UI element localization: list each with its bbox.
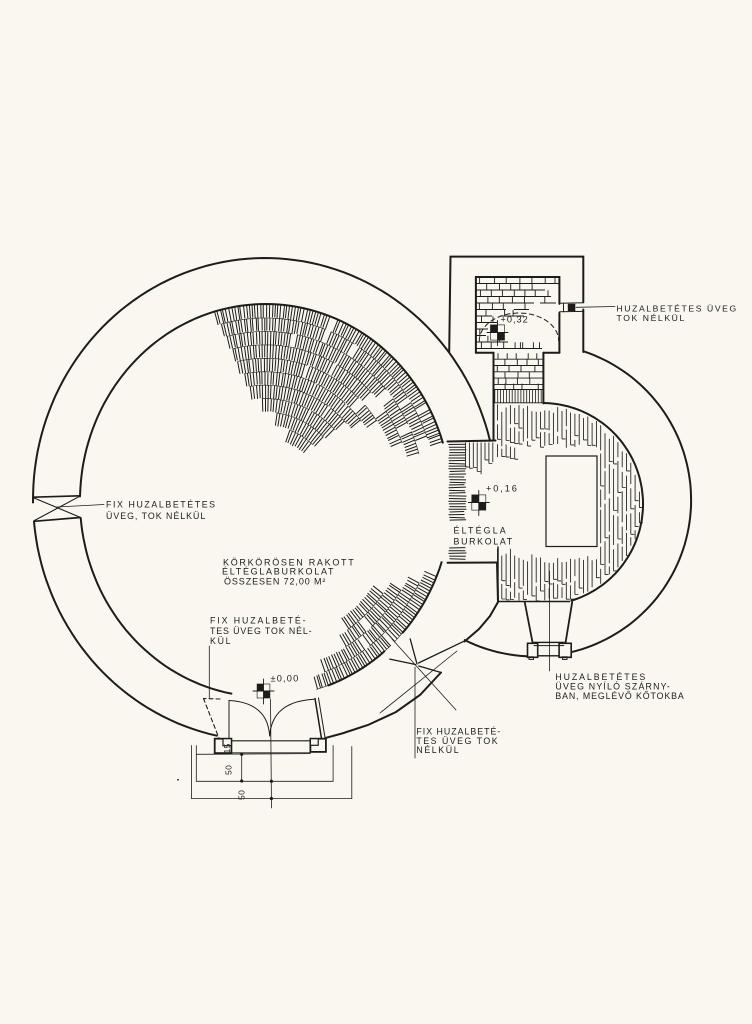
svg-text:15: 15 [222,743,232,753]
svg-text:FIX HUZALBETÉTES: FIX HUZALBETÉTES [106,500,217,510]
svg-text:+0,32: +0,32 [501,315,529,325]
svg-text:BAN, MEGLÉVŐ KŐTOKBA: BAN, MEGLÉVŐ KŐTOKBA [555,691,684,701]
svg-text:HUZALBETÉTES: HUZALBETÉTES [555,672,647,682]
svg-text:50: 50 [224,765,234,775]
svg-text:TES ÜVEG TOK NÉL-: TES ÜVEG TOK NÉL- [210,626,312,636]
svg-text:FIX HUZALBETÉ-: FIX HUZALBETÉ- [210,615,307,625]
svg-text:KÜL: KÜL [210,636,232,646]
svg-text:+0,16: +0,16 [486,484,519,494]
svg-text:ÜVEG, TOK NÉLKÜL: ÜVEG, TOK NÉLKÜL [106,511,206,521]
svg-text:ÉLTÉGLABURKOLAT: ÉLTÉGLABURKOLAT [222,567,335,577]
svg-text:50: 50 [237,790,247,800]
svg-text:FIX HUZALBETÉ-: FIX HUZALBETÉ- [416,727,501,737]
svg-text:BURKOLAT: BURKOLAT [454,537,514,547]
svg-text:ÉLTÉGLA: ÉLTÉGLA [454,526,508,536]
svg-text:±0,00: ±0,00 [271,674,300,684]
svg-text:TOK NÉLKÜL: TOK NÉLKÜL [617,313,686,323]
svg-text:NÉLKÜL: NÉLKÜL [416,745,460,755]
svg-text:ÖSSZESEN 72,00 M²: ÖSSZESEN 72,00 M² [224,576,326,586]
